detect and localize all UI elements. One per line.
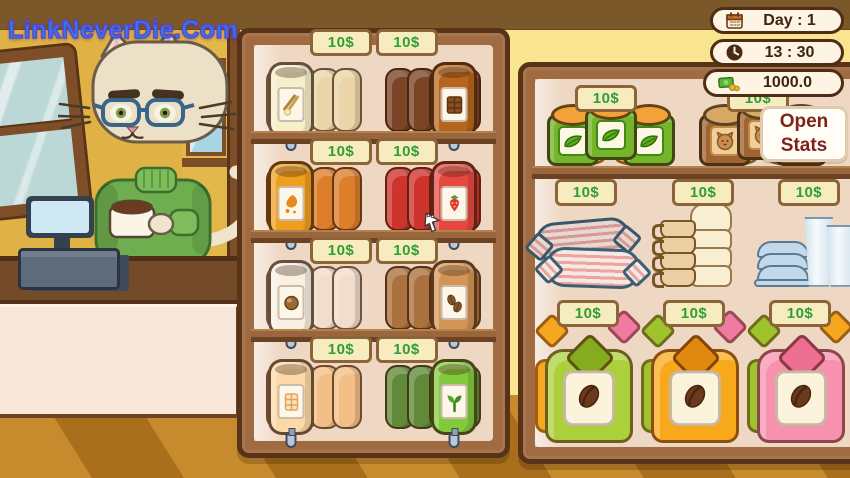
tea-leaf-icon [558,126,588,156]
coffee-bag-pink[interactable]: 10$ [749,300,850,447]
caramel-dispenser-group[interactable]: 10$ [254,144,374,243]
dispenser-canister [332,266,362,330]
shelf-board [532,166,850,179]
dispenser-tap [449,433,460,448]
sprout-icon [441,384,468,419]
green-tea-jars-group[interactable]: 10$ [535,79,687,179]
dispenser-front-canister [268,62,314,138]
dispenser-tap [286,433,297,448]
game-screen: 10$ 10$ 10$ 10$ 10$ 10$ [0,0,850,478]
sweater-collar [136,168,176,192]
bean-icon [680,381,710,416]
price-tag: 10$ [672,179,734,206]
ceramic-cup-stack [690,207,732,287]
dispenser-front-canister [431,260,477,336]
calendar-icon [725,11,744,30]
shelf-row: 10$ 10$ [254,45,493,144]
counter-front [0,304,240,418]
coffee-bag-green[interactable]: 10$ [537,300,641,447]
bean-icon [786,381,816,416]
coffee-bean-bag [757,349,845,443]
dispenser-front-canister [268,359,314,435]
dispenser-canister [332,167,362,231]
cat-icon [710,126,740,156]
bean-icon [574,381,604,416]
money-icon [718,74,740,93]
open-stats-line2: Stats [763,134,845,158]
lid-stack [754,246,812,287]
price-tag: 10$ [376,237,438,264]
sweater-cuff [170,210,198,235]
bag-label [563,370,615,426]
vanilla-icon [278,87,305,122]
price-tag: 10$ [663,300,725,327]
time-indicator: 13 : 30 [710,39,844,66]
white-chocolate-dispenser-group[interactable]: 10$ [254,342,374,441]
cash-register[interactable] [18,196,138,290]
day-indicator: Day : 1 [710,7,844,34]
time-label: 13 : 30 [750,44,829,62]
price-tag: 10$ [376,336,438,363]
lids-cups-group[interactable]: 10$ [750,179,850,300]
coffee-bean-bag [651,349,739,443]
shelf-row: 10$ 10$ [254,144,493,243]
price-tag: 10$ [557,300,619,327]
dispenser-front-canister [431,62,477,138]
coffee-bean-bag [545,349,633,443]
mug-stack [660,223,696,287]
cat-whiskers [58,104,90,128]
dispenser-shelf: 10$ 10$ 10$ 10$ 10$ 10$ [237,28,510,458]
price-tag: 10$ [376,29,438,56]
coffee-dispenser-group[interactable]: 10$ [374,243,494,342]
shelf-row: 10$ 10$ [254,243,493,342]
matcha-dispenser-group[interactable]: 10$ [374,342,494,441]
chocolate-icon [441,87,468,122]
mugs-cups-group[interactable]: 10$ [650,179,750,300]
shelf-board [251,131,496,144]
price-tag: 10$ [575,85,637,112]
straw-packs-group[interactable]: 10$ [539,179,650,300]
watermark: LinkNeverDie.Com [8,16,238,45]
open-stats-line1: Open [763,110,845,134]
chocolate-dispenser-group[interactable]: 10$ [374,45,494,144]
paw-cursor [422,211,446,235]
shelf-board [251,329,496,342]
coconut-dispenser-group[interactable]: 10$ [254,243,374,342]
straw-pack [544,246,641,289]
beans-icon [441,285,468,320]
open-stats-button[interactable]: Open Stats [760,106,848,162]
shelf-row: 10$ 10$ 10$ [535,179,850,300]
tea-leaf-icon [634,126,664,156]
price-tag: 10$ [555,179,617,206]
vanilla-dispenser-group[interactable]: 10$ [254,45,374,144]
clock-icon [725,43,744,62]
price-tag: 10$ [310,138,372,165]
dispenser-canister [332,68,362,132]
bag-label [669,370,721,426]
price-tag: 10$ [310,237,372,264]
dispenser-front-canister [268,161,314,237]
price-tag: 10$ [769,300,831,327]
tea-leaf-icon [596,120,626,150]
day-label: Day : 1 [750,12,829,30]
caramel-icon [278,186,305,221]
white-chocolate-icon [278,384,305,419]
coffee-bag-orange[interactable]: 10$ [643,300,747,447]
jar [585,108,637,160]
price-tag: 10$ [376,138,438,165]
cat-paw [149,214,173,234]
plastic-cup-stack [814,217,850,287]
price-tag: 10$ [310,29,372,56]
dispenser-front-canister [268,260,314,336]
dispenser-front-canister [431,359,477,435]
shelf-row: 10$ 10$ [254,342,493,441]
price-tag: 10$ [310,336,372,363]
nut-icon [278,285,305,320]
register-screen [26,196,94,238]
price-tag: 10$ [778,179,840,206]
bag-label [775,370,827,426]
dispenser-canister [332,365,362,429]
shelf-row: 10$ 10$ 10$ [535,300,850,447]
register-body [18,248,120,290]
money-label: 1000.0 [746,74,829,92]
shelf-board [251,230,496,243]
money-indicator: 1000.0 [703,69,844,97]
